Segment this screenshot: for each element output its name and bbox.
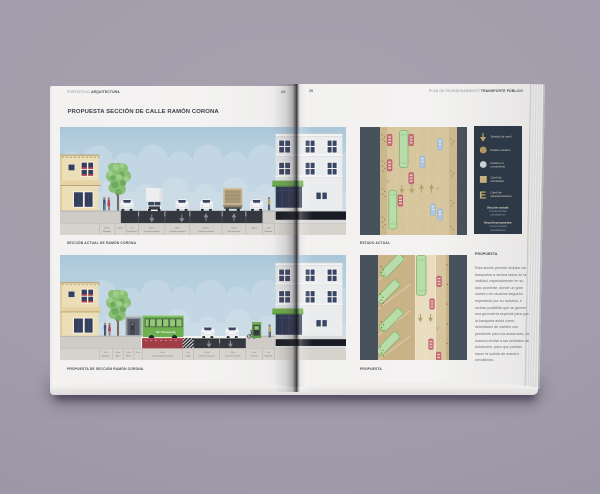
svg-text:3.5 m: 3.5 m (204, 352, 209, 354)
svg-text:circulación: circulación (491, 179, 505, 183)
svg-text:Troncal estación de parada: Troncal estación de parada (152, 355, 174, 358)
svg-text:5.00: 5.00 (267, 227, 270, 229)
svg-text:2.1: 2.1 (131, 227, 133, 229)
svg-text:3.40 m: 3.40 m (203, 227, 209, 229)
svg-text:3.60 m: 3.60 m (231, 227, 237, 229)
svg-text:Área: Área (116, 355, 120, 358)
svg-text:3.5 m: 3.5 m (231, 352, 236, 354)
svg-text:Ciclovía: Ciclovía (251, 356, 257, 358)
svg-text:Banqueta: Banqueta (103, 230, 111, 233)
svg-text:Carril de circulación: Carril de circulación (199, 355, 215, 358)
svg-text:Banqueta: Banqueta (265, 355, 273, 358)
svg-text:Carril de circulación: Carril de circulación (225, 355, 241, 358)
svg-text:5.4 m: 5.4 m (160, 352, 165, 354)
svg-text:Sentido de carril: Sentido de carril (491, 134, 512, 138)
svg-text:Banqueta: Banqueta (102, 355, 110, 358)
svg-text:Carga: Carga (186, 355, 191, 358)
svg-text:simultáneos: simultáneos (490, 213, 506, 217)
svg-text:Carril de circulación: Carril de circulación (170, 231, 186, 233)
svg-text:0.80 m: 0.80 m (118, 227, 124, 229)
svg-text:E: E (479, 190, 486, 202)
svg-text:Carril de circulación: Carril de circulación (144, 231, 160, 233)
svg-text:Retiro: Retiro (126, 355, 131, 358)
svg-text:Tren de der. bus: Tren de der. bus (228, 231, 241, 233)
svg-text:Banqueta: Banqueta (265, 230, 273, 233)
svg-text:2.80 m: 2.80 m (251, 227, 257, 229)
svg-text:0.9 m: 0.9 m (126, 352, 131, 354)
svg-text:0.9 m: 0.9 m (136, 352, 141, 354)
svg-text:Peatón estático: Peatón estático (491, 148, 511, 152)
svg-text:3.60 m: 3.60 m (149, 227, 155, 229)
svg-text:Estacionam.: Estacionam. (127, 230, 137, 233)
svg-text:movimiento: movimiento (491, 164, 506, 168)
svg-text:estacionamiento: estacionamiento (491, 194, 512, 198)
svg-text:3.40 m: 3.40 m (175, 227, 181, 229)
svg-text:2.5 m: 2.5 m (252, 352, 257, 354)
svg-text:4.90 m: 4.90 m (104, 227, 110, 229)
svg-text:12 m: 12 m (104, 352, 109, 354)
svg-text:0.9 m: 0.9 m (116, 352, 121, 354)
svg-text:Mi Transporte: Mi Transporte (156, 330, 176, 334)
svg-text:Carril de circulación: Carril de circulación (198, 231, 214, 233)
svg-text:simultáneos: simultáneos (490, 228, 506, 232)
